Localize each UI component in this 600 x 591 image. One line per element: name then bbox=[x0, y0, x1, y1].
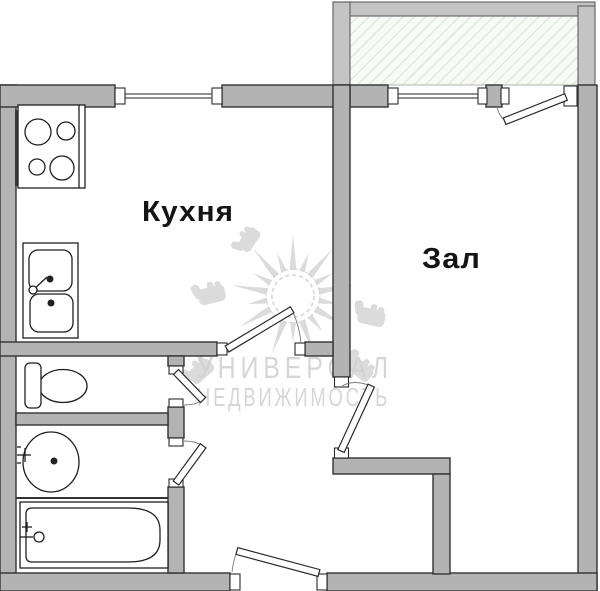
wall-bath-right bbox=[168, 487, 184, 573]
balcony-wall-top bbox=[333, 2, 595, 16]
door-jamb bbox=[230, 574, 240, 590]
wall-hall-L-vertical bbox=[433, 474, 450, 574]
wall-kitchen-top-right bbox=[222, 85, 350, 107]
fixtures bbox=[15, 105, 168, 568]
wall-wc-bath-right bbox=[168, 407, 184, 438]
stove-icon bbox=[15, 105, 85, 188]
wall-balcony-window-post bbox=[486, 85, 502, 107]
balcony-floor-hatch bbox=[350, 16, 578, 85]
wall-living-divider bbox=[333, 85, 350, 377]
doors bbox=[169, 86, 577, 590]
door-swing-icon bbox=[236, 548, 320, 577]
bathroom-door bbox=[169, 438, 206, 487]
living-room-label: Зал bbox=[422, 243, 481, 275]
wall-balcony-window-left bbox=[350, 85, 388, 107]
kitchen-sink-icon bbox=[23, 243, 78, 338]
window-jamb bbox=[115, 88, 125, 104]
entrance-door bbox=[230, 548, 327, 590]
door-swing-icon bbox=[173, 444, 206, 485]
wall-kitchen-bottom bbox=[0, 342, 217, 356]
window-jamb bbox=[212, 88, 222, 104]
door-jamb bbox=[169, 438, 183, 446]
balcony-wall-right bbox=[578, 6, 595, 85]
toilet-icon bbox=[25, 363, 87, 408]
balcony bbox=[333, 2, 595, 85]
wall-outer-bottom-right bbox=[327, 573, 597, 591]
window-jamb bbox=[501, 88, 509, 104]
wall-outer-right bbox=[578, 85, 597, 591]
door-swing-icon bbox=[503, 94, 567, 125]
balcony-wall-left bbox=[333, 2, 350, 85]
door-jamb bbox=[295, 343, 305, 355]
door-jamb bbox=[169, 399, 183, 407]
kitchen-label: Кухня bbox=[142, 196, 234, 228]
floor-plan-canvas: УНИВЕРСАЛ НЕДВИЖИМОСТЬ bbox=[0, 0, 600, 591]
wall-outer-bottom-left bbox=[0, 573, 230, 591]
door-jamb bbox=[335, 377, 349, 387]
window-jamb bbox=[478, 88, 487, 104]
washbasin-icon bbox=[17, 432, 79, 492]
wall-wc-right-stub bbox=[168, 356, 184, 366]
wall-kitchen-top-left bbox=[0, 85, 115, 107]
wall-hall-L-horizontal bbox=[333, 458, 450, 474]
floor-plan: УНИВЕРСАЛ НЕДВИЖИМОСТЬ bbox=[0, 0, 600, 591]
bathtub-icon bbox=[16, 498, 168, 568]
wall-hall-top-stub bbox=[305, 342, 333, 356]
wall-outer-left bbox=[0, 85, 16, 591]
door-jamb bbox=[217, 343, 227, 355]
window-jamb bbox=[388, 88, 398, 104]
wall-wc-bath-divider bbox=[16, 413, 168, 425]
kitchen-window bbox=[115, 88, 222, 104]
